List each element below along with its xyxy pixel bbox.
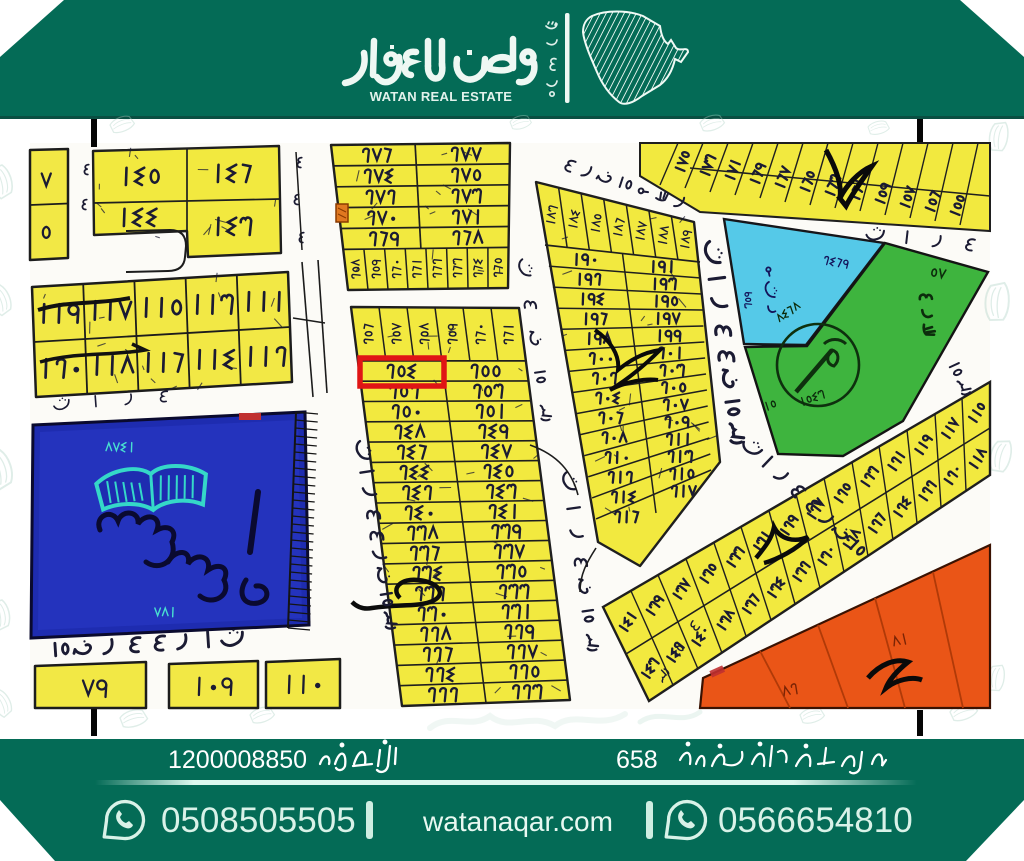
svg-text:watanaqar.com: watanaqar.com xyxy=(422,806,613,837)
svg-text:1200008850: 1200008850 xyxy=(168,746,307,774)
svg-text:0508505505: 0508505505 xyxy=(161,801,356,840)
svg-text:0566654810: 0566654810 xyxy=(718,801,913,840)
svg-text:658: 658 xyxy=(616,746,658,774)
svg-text:WATAN REAL ESTATE: WATAN REAL ESTATE xyxy=(370,89,513,104)
